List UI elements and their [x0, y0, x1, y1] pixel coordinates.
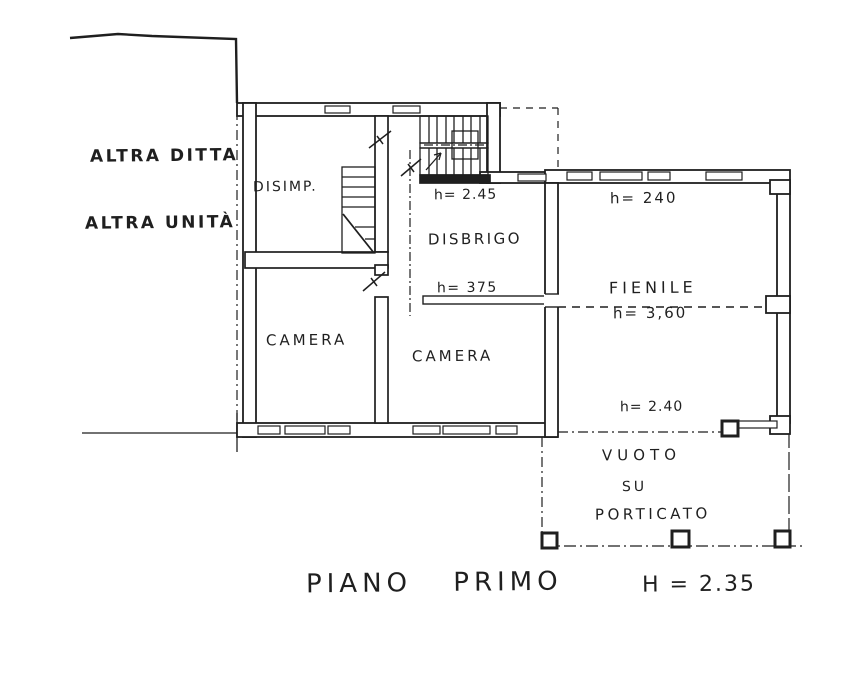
room-label-camera-left: CAMERA [266, 333, 347, 349]
stair-flight-left [342, 167, 375, 253]
room-label-camera-right: CAMERA [412, 349, 493, 365]
stair-direction-arrow [426, 153, 441, 170]
plan-title-height: H = 2.35 [642, 573, 756, 596]
porch-pillars [542, 421, 790, 548]
room-label-fienile: FIENILE [609, 280, 697, 297]
stair-break-line [343, 214, 374, 253]
camera-divider-wall [375, 297, 388, 423]
wall-north [237, 103, 500, 116]
window [706, 172, 742, 180]
disimp-south-wall [245, 252, 388, 268]
floor-plan-sheet: ALTRA DITTA ALTRA UNITÀ DISIMP. h= 2.45 … [0, 0, 866, 674]
door-jamb [375, 265, 388, 275]
beam-line [423, 296, 545, 304]
plan-title: PIANO PRIMO [306, 569, 563, 598]
railing-window [737, 421, 777, 428]
height-note-landing: h= 2.45 [434, 188, 497, 203]
pillar-east-mid [766, 296, 790, 313]
pillar [775, 531, 790, 547]
exterior-walls [237, 103, 790, 437]
height-note-fienile-mid: h= 3,60 [613, 306, 687, 322]
room-label-disimp: DISIMP. [253, 180, 318, 195]
pillar [542, 533, 557, 548]
windows [258, 106, 777, 434]
wall-west [243, 103, 256, 437]
window [600, 172, 642, 180]
window [258, 426, 280, 434]
window [567, 172, 592, 180]
window [648, 172, 670, 180]
window [518, 174, 546, 181]
stairwell-east-wall [487, 103, 500, 183]
window [325, 106, 350, 113]
interior-walls [245, 116, 559, 423]
window [413, 426, 440, 434]
height-note-fienile-north: h= 240 [610, 191, 678, 207]
wall-opening [544, 294, 559, 307]
pillar [672, 531, 689, 547]
window [285, 426, 325, 434]
window [443, 426, 490, 434]
label-altra-unita: ALTRA UNITÀ [85, 214, 235, 233]
label-altra-ditta: ALTRA DITTA [90, 147, 238, 166]
pillar-ne [770, 180, 790, 194]
room-label-disbrigo: DISBRIGO [428, 232, 522, 248]
site-boundary-lines [70, 34, 245, 452]
room-label-vuoto-su: SU [622, 480, 647, 494]
window [393, 106, 420, 113]
room-label-porticato: PORTICATO [595, 506, 711, 522]
window [328, 426, 350, 434]
room-label-vuoto: VUOTO [602, 448, 681, 464]
height-note-camera-beam: h= 375 [437, 281, 498, 296]
fienile-wall-west [545, 183, 558, 437]
stair-base-wall [420, 175, 490, 183]
window [496, 426, 517, 434]
height-note-porch-edge: h= 2.40 [620, 400, 683, 415]
pillar [722, 421, 738, 436]
